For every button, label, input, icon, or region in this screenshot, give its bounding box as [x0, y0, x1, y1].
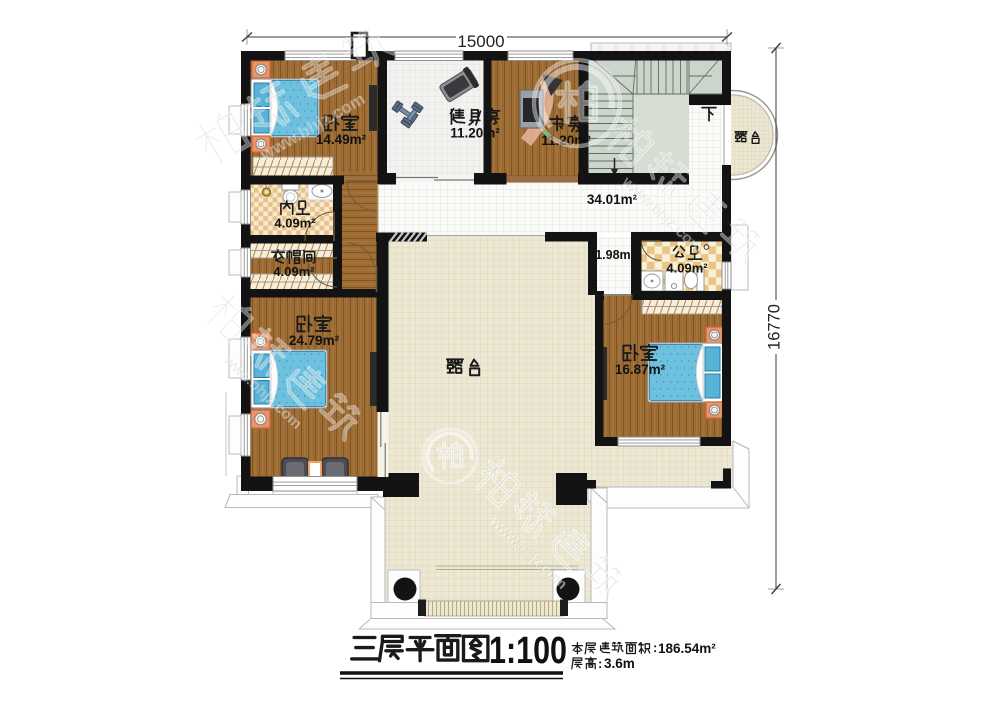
svg-text:24.79m²: 24.79m²: [289, 333, 340, 348]
svg-text:15000: 15000: [457, 32, 504, 51]
svg-text:16770: 16770: [766, 304, 784, 350]
svg-text:11.20m²: 11.20m²: [450, 126, 500, 141]
svg-text:14.49m²: 14.49m²: [316, 132, 367, 147]
svg-text:1.98m²: 1.98m²: [595, 248, 635, 262]
svg-text:3.6m: 3.6m: [604, 656, 635, 671]
svg-text:1:100: 1:100: [489, 630, 567, 672]
svg-text:4.09m²: 4.09m²: [274, 215, 316, 230]
svg-text::: :: [598, 656, 602, 671]
svg-text:4.09m²: 4.09m²: [666, 260, 708, 275]
svg-text:4.09m²: 4.09m²: [273, 264, 315, 279]
svg-text:16.87m²: 16.87m²: [615, 362, 666, 377]
svg-text:186.54m²: 186.54m²: [658, 641, 716, 656]
svg-text::: :: [653, 640, 657, 655]
